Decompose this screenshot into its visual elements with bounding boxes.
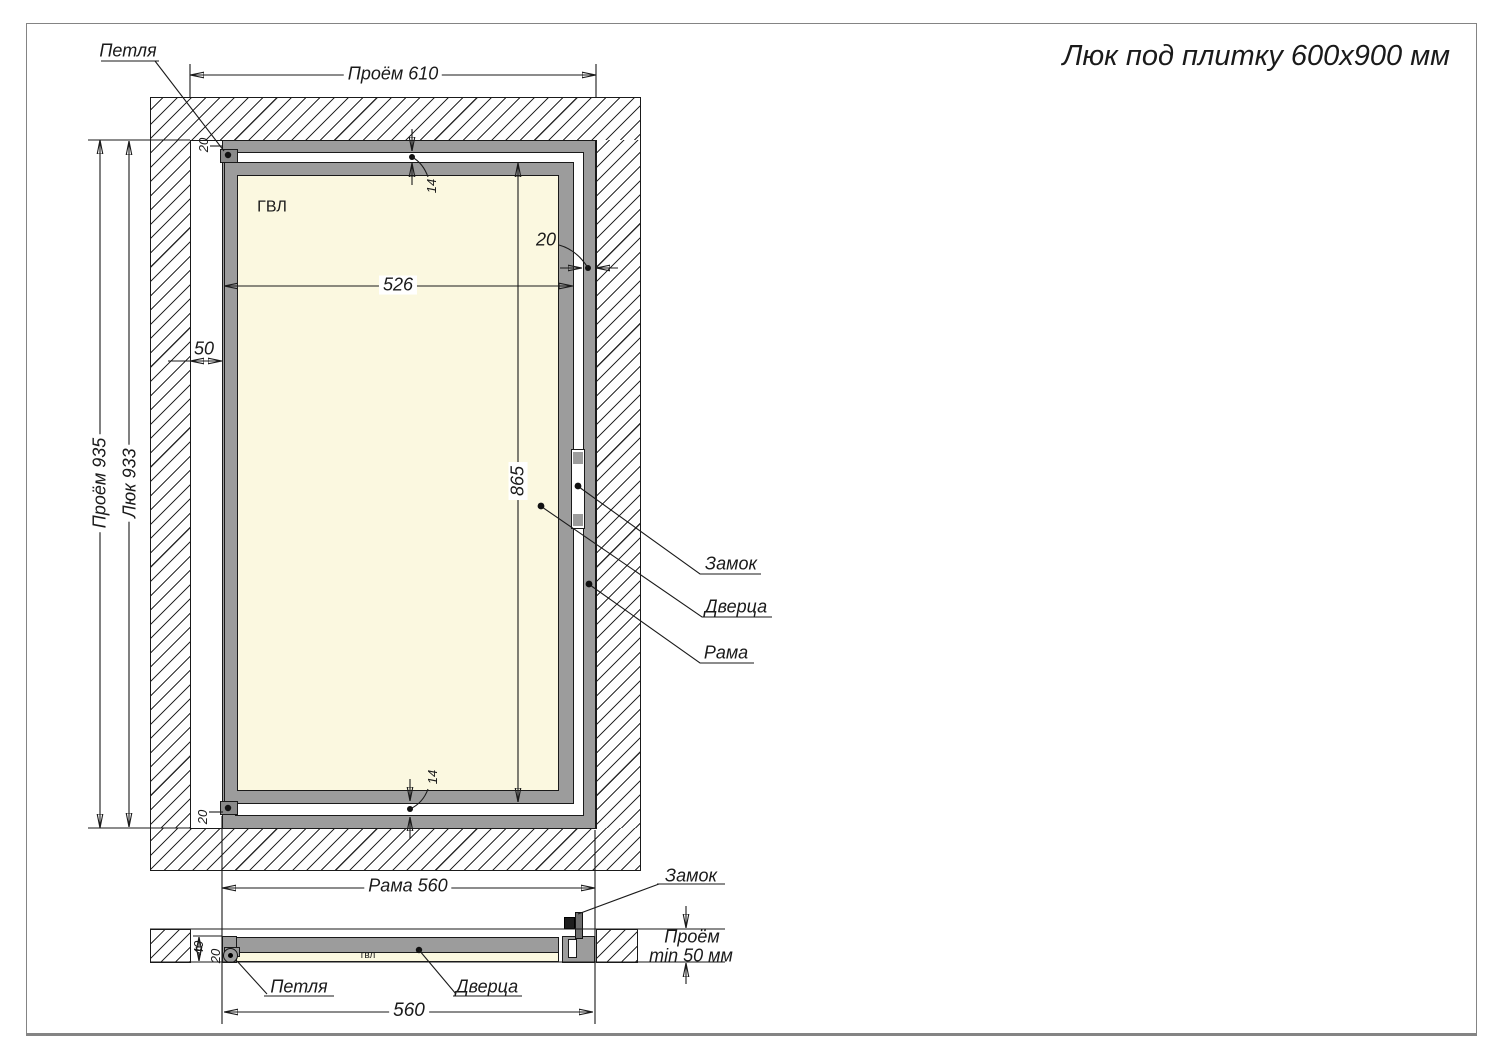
dim-frame-profile-right: 20 <box>536 231 556 250</box>
dim-opening-width: Проём 610 <box>344 65 442 84</box>
section-lock-label: Замок <box>665 867 717 886</box>
dim-door-width: 526 <box>379 276 417 295</box>
hinge-bottom <box>220 801 238 815</box>
section-lock-box <box>564 917 575 929</box>
front-door-label: Дверца <box>705 598 767 617</box>
section-door-label: Дверца <box>456 978 518 997</box>
section-hinge-pin <box>228 953 233 958</box>
dim-door-gap-bottom: 14 <box>426 770 440 784</box>
dim-frame-profile-top: 20 <box>197 138 211 152</box>
dim-opening-height: Проём 935 <box>91 434 110 532</box>
lock-front-bottom-tab <box>573 514 583 526</box>
front-hinge-label: Петля <box>99 42 156 61</box>
section-lock-slot <box>568 939 577 958</box>
section-dim-profile: 20 <box>209 949 223 963</box>
lock-front-top-tab <box>573 452 583 464</box>
dim-frame-profile-bottom: 20 <box>196 810 210 824</box>
section-door-panel <box>236 937 559 953</box>
lock-front <box>571 449 585 529</box>
section-wall-left <box>150 929 191 963</box>
front-panel-label: ГВЛ <box>257 200 287 217</box>
drawing-title: Люк под плитку 600х900 мм <box>1062 40 1450 73</box>
section-dim-depth: 40 <box>192 941 206 955</box>
section-hinge-label: Петля <box>270 978 327 997</box>
dim-side-gap: 50 <box>194 340 214 359</box>
section-panel-label: гвл <box>361 951 376 962</box>
section-frame-right <box>562 936 595 963</box>
dim-door-gap-top: 14 <box>425 179 439 193</box>
front-frame-label: Рама <box>704 644 748 663</box>
section-opening-note-2: min 50 мм <box>649 947 733 966</box>
section-opening-note-1: Проём <box>664 928 719 947</box>
section-dim-frame-width: 560 <box>389 1001 429 1021</box>
dim-frame-width: Рама 560 <box>364 877 451 896</box>
section-hinge-barrel <box>223 948 238 963</box>
section-lock-plate <box>575 912 583 939</box>
section-wall-right <box>596 929 638 963</box>
drawing-canvas: Люк под плитку 600х900 мм Петля ГВЛ Замо… <box>0 0 1500 1061</box>
dim-hatch-height: Люк 933 <box>121 444 140 521</box>
front-lock-label: Замок <box>705 555 757 574</box>
dim-door-height: 865 <box>509 462 528 500</box>
hinge-top <box>220 149 238 163</box>
section-gvl-strip <box>236 952 559 962</box>
